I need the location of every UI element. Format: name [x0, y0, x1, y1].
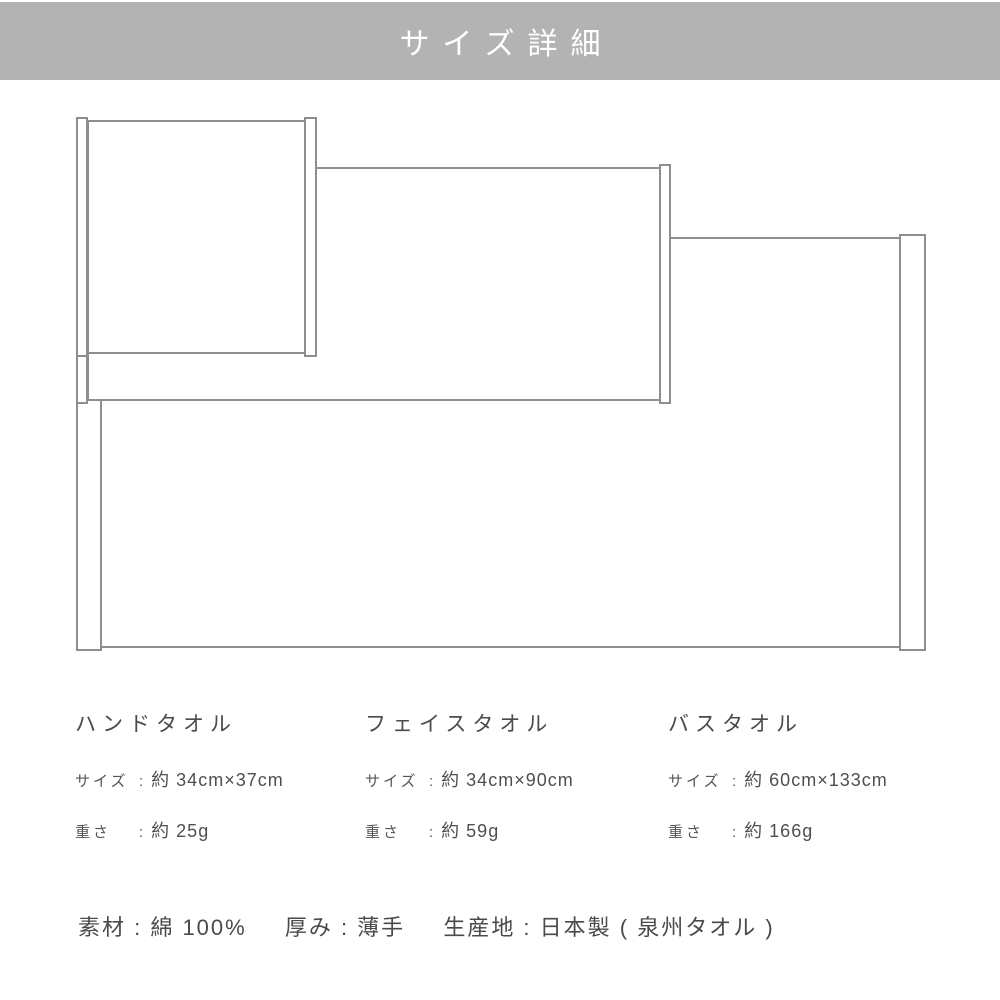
weight-value: 約 59g	[441, 817, 499, 843]
page-title: サイズ詳細	[386, 19, 613, 63]
face-towel-right-hem	[659, 164, 671, 404]
material-info-line: 素材 : 綿 100% 厚み : 薄手 生産地 : 日本製 ( 泉州タオル )	[78, 910, 775, 942]
spec-column-face-towel: フェイスタオル サイズ : 約 34cm×90cm 重さ : 約 59g	[365, 708, 660, 868]
origin-segment: 生産地 : 日本製 ( 泉州タオル )	[443, 915, 774, 940]
size-label: サイズ	[75, 770, 139, 791]
hand-towel-outline	[87, 120, 306, 354]
size-value: 約 60cm×133cm	[744, 766, 888, 792]
size-value: 約 34cm×90cm	[441, 766, 574, 792]
spec-column-bath-towel: バスタオル サイズ : 約 60cm×133cm 重さ : 約 166g	[668, 708, 963, 868]
colon-separator: :	[429, 824, 433, 841]
towel-name-face: フェイスタオル	[365, 708, 660, 738]
hand-towel-right-hem	[304, 117, 317, 357]
size-row: サイズ : 約 34cm×90cm	[365, 766, 660, 792]
thickness-segment: 厚み : 薄手	[285, 915, 405, 940]
header-banner: サイズ詳細	[0, 2, 1000, 80]
colon-separator: :	[429, 773, 433, 790]
weight-label: 重さ	[75, 821, 139, 842]
towel-name-bath: バスタオル	[668, 708, 963, 738]
size-label: サイズ	[668, 770, 732, 791]
weight-label: 重さ	[668, 821, 732, 842]
size-label: サイズ	[365, 770, 429, 791]
weight-row: 重さ : 約 166g	[668, 817, 963, 843]
colon-separator: :	[732, 773, 736, 790]
size-row: サイズ : 約 34cm×37cm	[75, 766, 370, 792]
size-value: 約 34cm×37cm	[151, 766, 284, 792]
colon-separator: :	[732, 824, 736, 841]
spec-column-hand-towel: ハンドタオル サイズ : 約 34cm×37cm 重さ : 約 25g	[75, 708, 370, 868]
hand-towel-left-hem	[76, 117, 88, 357]
bath-towel-right-hem	[899, 234, 926, 651]
towel-name-hand: ハンドタオル	[75, 708, 370, 738]
weight-value: 約 166g	[744, 817, 813, 843]
weight-label: 重さ	[365, 821, 429, 842]
size-detail-infographic: サイズ詳細 ハンドタオル サイズ : 約 34cm×37cm 重さ : 約 25…	[0, 0, 1000, 1000]
weight-row: 重さ : 約 25g	[75, 817, 370, 843]
colon-separator: :	[139, 824, 143, 841]
material-segment: 素材 : 綿 100%	[78, 915, 247, 940]
colon-separator: :	[139, 773, 143, 790]
weight-row: 重さ : 約 59g	[365, 817, 660, 843]
size-row: サイズ : 約 60cm×133cm	[668, 766, 963, 792]
weight-value: 約 25g	[151, 817, 209, 843]
